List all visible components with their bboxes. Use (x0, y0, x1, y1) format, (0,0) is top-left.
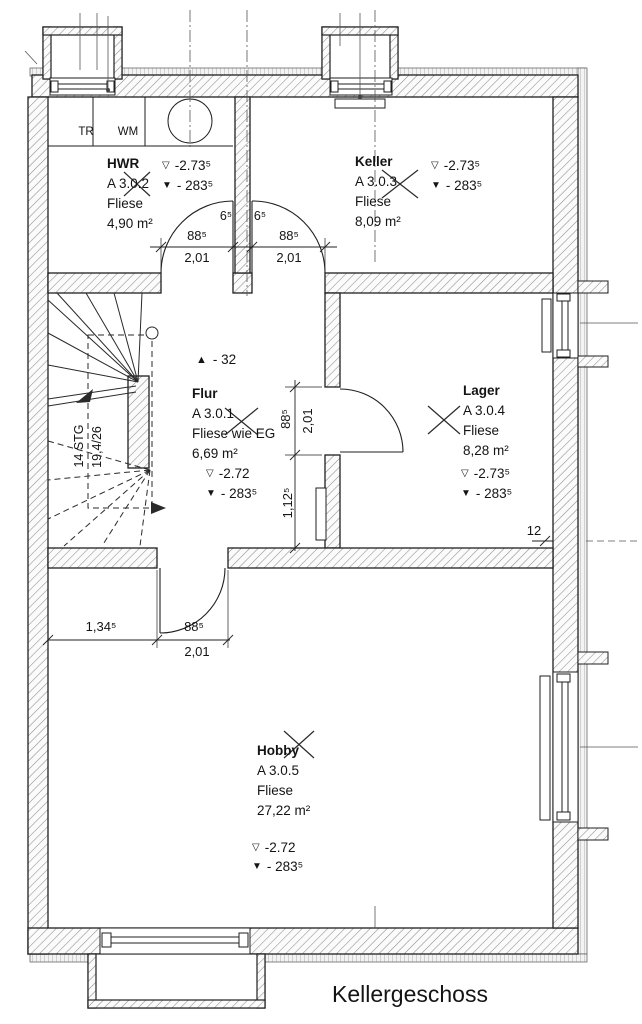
level-value: - 283⁵ (221, 486, 257, 501)
stair-ratio-label: 19,4/26 (87, 426, 107, 468)
rfb-triangle-icon: ▼ (461, 488, 471, 499)
level-ffb-hwr: ▽ -2.73⁵ (162, 156, 211, 175)
dim-door-hobby-height: 2,01 (184, 642, 209, 662)
room-name: HWR (107, 154, 153, 174)
stair-steps-label: 14 STG (69, 424, 89, 467)
dim-jamb-right: 6⁵ (254, 206, 266, 226)
washer-label: WM (118, 122, 138, 142)
level-value: -2.73⁵ (474, 466, 510, 481)
step-triangle-icon: ▲ (196, 354, 207, 366)
level-rfb-keller: ▼ - 283⁵ (431, 176, 482, 195)
level-value: - 283⁵ (446, 178, 482, 193)
room-area: 8,09 m² (355, 212, 401, 232)
dim-door-lager-width: 88⁵ (276, 409, 296, 429)
room-label-flur: Flur A 3.0.1 Fliese wie EG 6,69 m² (192, 384, 275, 464)
floor-plan-sheet: TR WM HWR A 3.0.2 Fliese 4,90 m² ▽ -2.73… (0, 0, 642, 1024)
dim-wall-thickness: 12 (527, 521, 541, 541)
room-name: Hobby (257, 741, 310, 761)
ffb-triangle-icon: ▽ (461, 468, 469, 479)
room-number: A 3.0.4 (463, 401, 509, 421)
ffb-triangle-icon: ▽ (206, 468, 214, 479)
room-area: 6,69 m² (192, 444, 275, 464)
level-value: - 283⁵ (476, 486, 512, 501)
dryer-label: TR (78, 122, 93, 142)
ffb-triangle-icon: ▽ (252, 842, 260, 853)
room-number: A 3.0.1 (192, 404, 275, 424)
level-rfb-lager: ▼ - 283⁵ (461, 484, 512, 503)
dim-hobby-wall-offset: 1,34⁵ (86, 617, 117, 637)
room-name: Flur (192, 384, 275, 404)
room-label-keller: Keller A 3.0.3 Fliese 8,09 m² (355, 152, 401, 232)
level-ffb-lager: ▽ -2.73⁵ (461, 464, 510, 483)
room-area: 4,90 m² (107, 214, 153, 234)
stair-arrow-exit (151, 502, 166, 514)
radiators (316, 99, 551, 820)
dim-flur-segment: 1,12⁵ (278, 488, 298, 519)
dim-door-hwr-height: 2,01 (184, 248, 209, 268)
level-value: -2.73⁵ (175, 158, 211, 173)
level-ffb-keller: ▽ -2.73⁵ (431, 156, 480, 175)
level-ffb-hobby: ▽ -2.72 (252, 838, 295, 857)
dim-jamb-left: 6⁵ (220, 206, 232, 226)
dim-door-hobby-width: 88⁵ (184, 617, 204, 637)
drawing-title: Kellergeschoss (332, 984, 488, 1004)
floor-plan-drawing (0, 0, 642, 1024)
step-annotation: ▲ - 32 (196, 352, 236, 367)
step-value: - 32 (213, 352, 236, 367)
room-floor: Fliese (257, 781, 310, 801)
room-floor: Fliese (107, 194, 153, 214)
room-floor: Fliese wie EG (192, 424, 275, 444)
level-rfb-hobby: ▼ - 283⁵ (252, 857, 303, 876)
level-value: -2.72 (219, 466, 250, 481)
room-number: A 3.0.5 (257, 761, 310, 781)
level-ffb-flur: ▽ -2.72 (206, 464, 249, 483)
room-name: Lager (463, 381, 509, 401)
room-area: 27,22 m² (257, 801, 310, 821)
room-label-hwr: HWR A 3.0.2 Fliese 4,90 m² (107, 154, 153, 234)
dim-door-keller-width: 88⁵ (279, 226, 299, 246)
level-value: - 283⁵ (267, 859, 303, 874)
ffb-triangle-icon: ▽ (431, 160, 439, 171)
room-floor: Fliese (463, 421, 509, 441)
room-number: A 3.0.2 (107, 174, 153, 194)
level-value: - 283⁵ (177, 178, 213, 193)
level-value: -2.73⁵ (444, 158, 480, 173)
room-label-lager: Lager A 3.0.4 Fliese 8,28 m² (463, 381, 509, 461)
dim-door-hwr-width: 88⁵ (187, 226, 207, 246)
dim-door-lager-height: 2,01 (298, 408, 318, 433)
level-rfb-flur: ▼ - 283⁵ (206, 484, 257, 503)
room-floor: Fliese (355, 192, 401, 212)
level-value: -2.72 (265, 840, 296, 855)
hwr-fixtures (48, 97, 233, 146)
door-swing-lager (340, 389, 403, 452)
room-area: 8,28 m² (463, 441, 509, 461)
room-label-hobby: Hobby A 3.0.5 Fliese 27,22 m² (257, 741, 310, 821)
ffb-triangle-icon: ▽ (162, 160, 170, 171)
rfb-triangle-icon: ▼ (206, 488, 216, 499)
rfb-triangle-icon: ▼ (431, 180, 441, 191)
dim-door-keller-height: 2,01 (276, 248, 301, 268)
room-number: A 3.0.3 (355, 172, 401, 192)
rfb-triangle-icon: ▼ (252, 861, 262, 872)
level-rfb-hwr: ▼ - 283⁵ (162, 176, 213, 195)
newel-post (146, 327, 158, 339)
rfb-triangle-icon: ▼ (162, 180, 172, 191)
room-name: Keller (355, 152, 401, 172)
